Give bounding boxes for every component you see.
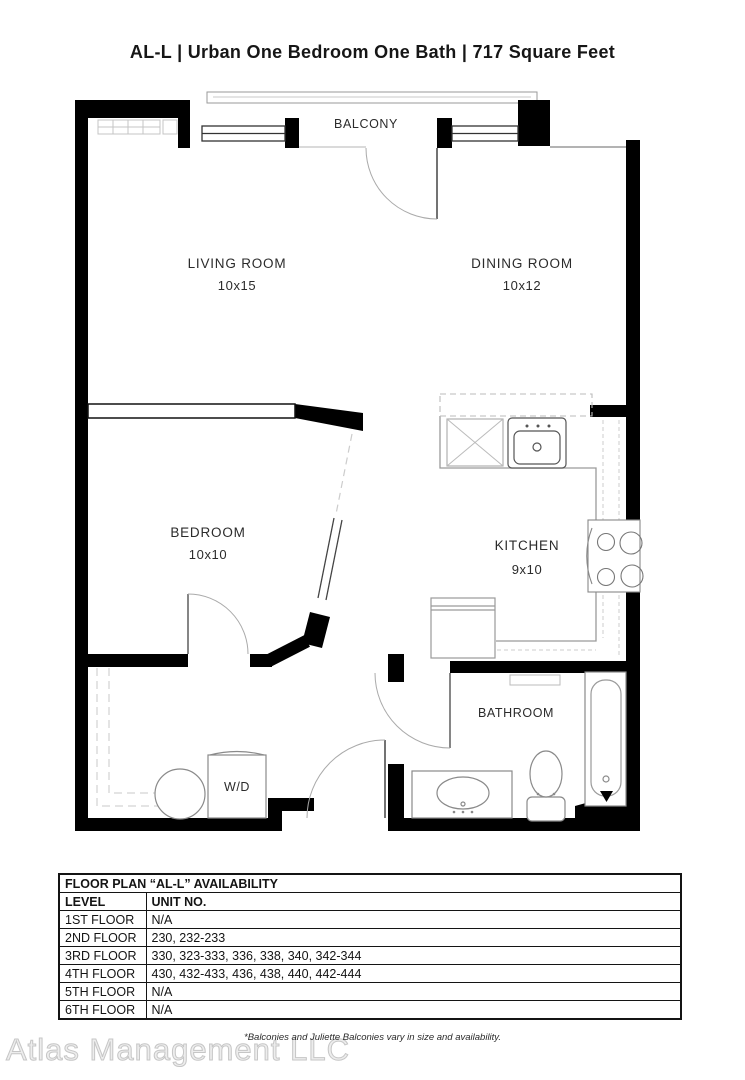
availability-table: FLOOR PLAN “AL-L” AVAILABILITY LEVEL UNI… [58, 873, 682, 1020]
stove [587, 520, 643, 592]
water-heater [155, 769, 205, 819]
balcony-label: BALCONY [334, 117, 398, 131]
kitchen-fixtures [431, 394, 643, 658]
balcony-rail [207, 92, 537, 103]
sliding-door [318, 434, 352, 600]
washer-dryer-label: W/D [224, 780, 250, 794]
col-header-level: LEVEL [59, 893, 146, 911]
kitchen-dims: 9x10 [512, 562, 543, 577]
level-cell: 3RD FLOOR [59, 947, 146, 965]
table-title-row: FLOOR PLAN “AL-L” AVAILABILITY [59, 874, 681, 893]
table-title: FLOOR PLAN “AL-L” AVAILABILITY [59, 874, 681, 893]
level-cell: 6TH FLOOR [59, 1001, 146, 1020]
units-cell: 230, 232-233 [146, 929, 681, 947]
units-cell: N/A [146, 1001, 681, 1020]
table-row: 3RD FLOOR 330, 323-333, 336, 338, 340, 3… [59, 947, 681, 965]
bathtub [585, 672, 626, 806]
table-row: 5TH FLOOR N/A [59, 983, 681, 1001]
vanity-sink [412, 771, 512, 818]
units-cell: 430, 432-433, 436, 438, 440, 442-444 [146, 965, 681, 983]
col-header-unit: UNIT NO. [146, 893, 681, 911]
heater-vent [98, 120, 177, 134]
floorplan-page: AL-L | Urban One Bedroom One Bath | 717 … [0, 0, 745, 1080]
upper-cabinets [440, 394, 592, 416]
table-row: 4TH FLOOR 430, 432-433, 436, 438, 440, 4… [59, 965, 681, 983]
balcony-door [299, 147, 437, 219]
table-header-row: LEVEL UNIT NO. [59, 893, 681, 911]
level-cell: 5TH FLOOR [59, 983, 146, 1001]
bedroom-door [188, 594, 248, 654]
dishwasher [447, 419, 503, 466]
interior-wall-living-bedroom [88, 404, 295, 418]
bathroom-door [375, 673, 450, 748]
bedroom-dims: 10x10 [189, 547, 227, 562]
bathroom-fixtures [412, 672, 626, 821]
floorplan-drawing: BALCONY LIVING ROOM 10x15 DINING ROOM 10… [0, 0, 745, 860]
refrigerator [431, 598, 495, 658]
shelf [510, 675, 560, 685]
level-cell: 2ND FLOOR [59, 929, 146, 947]
table-row: 6TH FLOOR N/A [59, 1001, 681, 1020]
availability-table-wrap: FLOOR PLAN “AL-L” AVAILABILITY LEVEL UNI… [58, 873, 682, 1020]
footnote: *Balconies and Juliette Balconies vary i… [0, 1032, 745, 1043]
living-room-dims: 10x15 [218, 278, 256, 293]
bathroom-label: BATHROOM [478, 706, 554, 720]
dining-room-dims: 10x12 [503, 278, 541, 293]
table-row: 2ND FLOOR 230, 232-233 [59, 929, 681, 947]
units-cell: N/A [146, 983, 681, 1001]
bedroom-label: BEDROOM [170, 525, 245, 540]
kitchen-sink [508, 418, 566, 468]
entry-door [307, 740, 385, 818]
living-room-label: LIVING ROOM [188, 256, 287, 271]
table-row: 1ST FLOOR N/A [59, 911, 681, 929]
level-cell: 1ST FLOOR [59, 911, 146, 929]
dining-room-label: DINING ROOM [471, 256, 573, 271]
closet-rods [97, 668, 160, 806]
level-cell: 4TH FLOOR [59, 965, 146, 983]
kitchen-label: KITCHEN [495, 538, 560, 553]
units-cell: N/A [146, 911, 681, 929]
toilet [527, 751, 565, 821]
units-cell: 330, 323-333, 336, 338, 340, 342-344 [146, 947, 681, 965]
